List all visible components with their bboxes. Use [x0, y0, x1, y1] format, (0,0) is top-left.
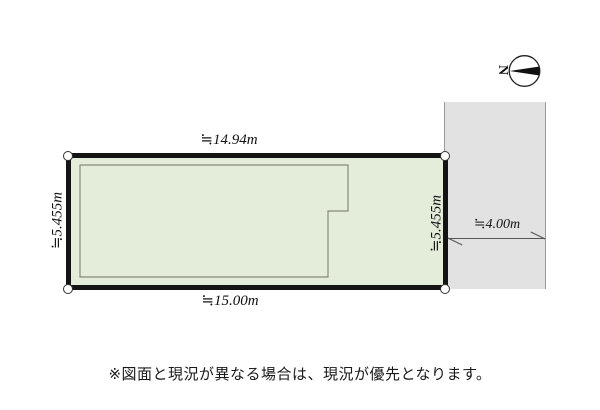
plot-corner-marker-bottom-right: [440, 284, 450, 294]
disclaimer-note: ※図面と現況が異なる場合は、現況が優先となります。: [0, 363, 600, 384]
road-width-dimension-line: [448, 238, 545, 239]
dimension-label-bottom: ≒15.00m: [170, 294, 290, 309]
dimension-label-top: ≒14.94m: [169, 133, 289, 148]
dimension-label-right: ≒5.455m: [430, 165, 445, 283]
land-plot-diagram: N ≒14.94m ≒15.00m ≒5.455m ≒5.455m ≒4.00m…: [0, 0, 600, 410]
road-area: [444, 102, 546, 289]
dimension-label-left: ≒5.455m: [51, 162, 66, 280]
dimension-label-road-width: ≒4.00m: [457, 217, 537, 232]
plot-corner-marker-top-left: [63, 151, 73, 161]
plot-corner-marker-top-right: [440, 151, 450, 161]
compass-icon: [507, 54, 542, 89]
plot-corner-marker-bottom-left: [63, 284, 73, 294]
land-plot-area: [66, 153, 448, 290]
